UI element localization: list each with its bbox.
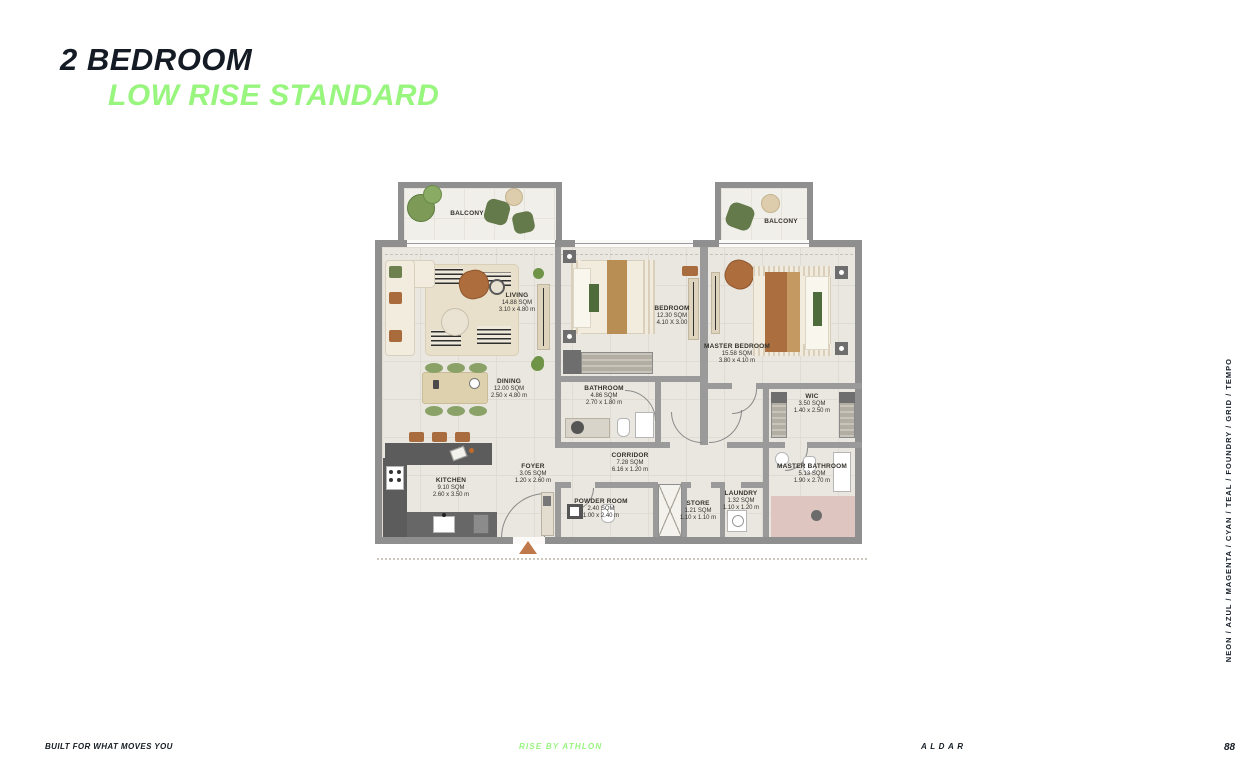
bed-runner xyxy=(765,272,787,352)
wall xyxy=(561,376,700,382)
room-label-foyer: FOYER 3.05 SQM 1.20 x 2.60 m xyxy=(515,463,551,484)
brochure-page: { "header": { "title": "2 BEDROOM", "sub… xyxy=(0,0,1248,762)
bar-stool xyxy=(409,432,424,442)
room-label-powder-room: POWDER ROOM 2.40 SQM 1.00 x 2.40 m xyxy=(574,498,627,519)
dishwasher xyxy=(473,514,489,534)
room-label-store: STORE 1.21 SQM 1.10 x 1.10 m xyxy=(680,500,716,521)
bath-sink xyxy=(571,421,584,434)
entrance-arrow-icon xyxy=(519,541,537,554)
wall xyxy=(763,389,769,537)
dresser-line xyxy=(693,282,694,336)
sofa-cushion xyxy=(389,266,402,278)
dining-table xyxy=(422,372,488,404)
wall xyxy=(555,247,561,448)
burner xyxy=(389,478,393,482)
room-label-bedroom: BEDROOM 12.30 SQM 4.10 X 3.00 xyxy=(654,305,689,326)
lamp xyxy=(839,346,844,351)
wall xyxy=(561,442,670,448)
wall xyxy=(769,442,785,448)
bar-stool xyxy=(432,432,447,442)
floor-plan: BALCONY BALCONY LIVING 14.88 SQM 3.10 x … xyxy=(375,180,869,562)
room-label-master-bedroom: MASTER BEDROOM 15.58 SQM 3.80 x 4.10 m xyxy=(704,343,770,364)
wall xyxy=(655,376,661,448)
wall xyxy=(807,442,862,448)
foyer-cabinet-item xyxy=(543,496,551,506)
table-item xyxy=(469,378,480,389)
dining-chair xyxy=(469,363,487,373)
balcony-table xyxy=(761,194,780,213)
room-label-bathroom: BATHROOM 4.86 SQM 2.70 x 1.80 m xyxy=(584,385,623,406)
wall xyxy=(595,482,655,488)
wall xyxy=(555,482,561,537)
shower xyxy=(635,412,654,438)
bed-runner xyxy=(607,260,627,334)
room-label-master-bathroom: MASTER BATHROOM 5.13 SQM 1.90 x 2.70 m xyxy=(777,463,847,484)
room-label-balcony-right: BALCONY xyxy=(764,218,798,225)
window xyxy=(407,240,555,247)
page-number: 88 xyxy=(1224,742,1235,753)
footer-brand-rise: RISE BY ATHLON xyxy=(519,742,602,751)
wall xyxy=(561,482,571,488)
page-title: 2 BEDROOM xyxy=(60,42,252,78)
lamp xyxy=(567,254,572,259)
lamp xyxy=(567,334,572,339)
plant-icon xyxy=(423,185,442,204)
dining-chair xyxy=(469,406,487,416)
dining-chair xyxy=(447,363,465,373)
room-label-kitchen: KITCHEN 9.10 SQM 2.60 x 3.50 m xyxy=(433,477,469,498)
wic-shelf xyxy=(839,392,855,403)
rug-pattern xyxy=(477,326,511,344)
sofa-cushion xyxy=(389,330,402,342)
dining-chair xyxy=(425,363,443,373)
bowl xyxy=(469,448,474,453)
room-label-corridor: CORRIDOR 7.28 SQM 6.16 x 1.20 m xyxy=(612,452,649,473)
dining-chair xyxy=(425,406,443,416)
wic-shelf xyxy=(771,392,787,403)
table-item xyxy=(433,380,439,389)
bed-runner xyxy=(787,272,800,352)
wardrobe xyxy=(581,352,653,374)
tv-line xyxy=(543,288,544,346)
room-label-wic: WIC 3.50 SQM 1.40 x 2.50 m xyxy=(794,393,830,414)
bed-throw xyxy=(813,292,822,326)
wall xyxy=(727,442,765,448)
plant-icon xyxy=(531,358,544,371)
service-shaft xyxy=(658,484,682,537)
footer-brand-aldar: ALDAR xyxy=(921,742,967,751)
burner xyxy=(389,470,393,474)
dresser-line xyxy=(715,276,716,330)
page-subtitle: LOW RISE STANDARD xyxy=(108,79,439,113)
kitchen-sink xyxy=(433,516,455,533)
washer-door xyxy=(732,515,744,527)
curtain-dashed-line xyxy=(385,254,853,255)
lamp xyxy=(839,270,844,275)
footer-tagline: BUILT FOR WHAT MOVES YOU xyxy=(45,742,173,751)
faucet xyxy=(442,513,446,517)
burner xyxy=(397,478,401,482)
wall xyxy=(756,383,862,389)
balcony-table xyxy=(505,188,523,206)
room-label-living: LIVING 14.88 SQM 3.10 x 4.80 m xyxy=(499,292,535,313)
bed-blanket-texture xyxy=(643,260,655,334)
wall xyxy=(708,383,732,389)
desk xyxy=(682,266,698,276)
plant-icon xyxy=(533,268,544,279)
room-label-laundry: LAUNDRY 1.32 SQM 1.10 x 1.20 m xyxy=(723,490,759,511)
burner xyxy=(397,470,401,474)
dotted-line xyxy=(377,558,867,560)
wall xyxy=(741,482,765,488)
toilet xyxy=(617,418,630,437)
room-label-balcony-left: BALCONY xyxy=(450,210,484,217)
window xyxy=(719,240,809,247)
shower-drain xyxy=(811,510,822,521)
coffee-table xyxy=(441,308,469,336)
sofa-cushion xyxy=(389,292,402,304)
dining-chair xyxy=(447,406,465,416)
bed-throw xyxy=(589,284,599,312)
window xyxy=(575,240,693,247)
wardrobe xyxy=(563,350,581,374)
bar-stool xyxy=(455,432,470,442)
collection-list: NEON / AZUL / MAGENTA / CYAN / TEAL / FO… xyxy=(1224,358,1233,662)
room-label-dining: DINING 12.00 SQM 2.50 x 4.80 m xyxy=(491,378,527,399)
